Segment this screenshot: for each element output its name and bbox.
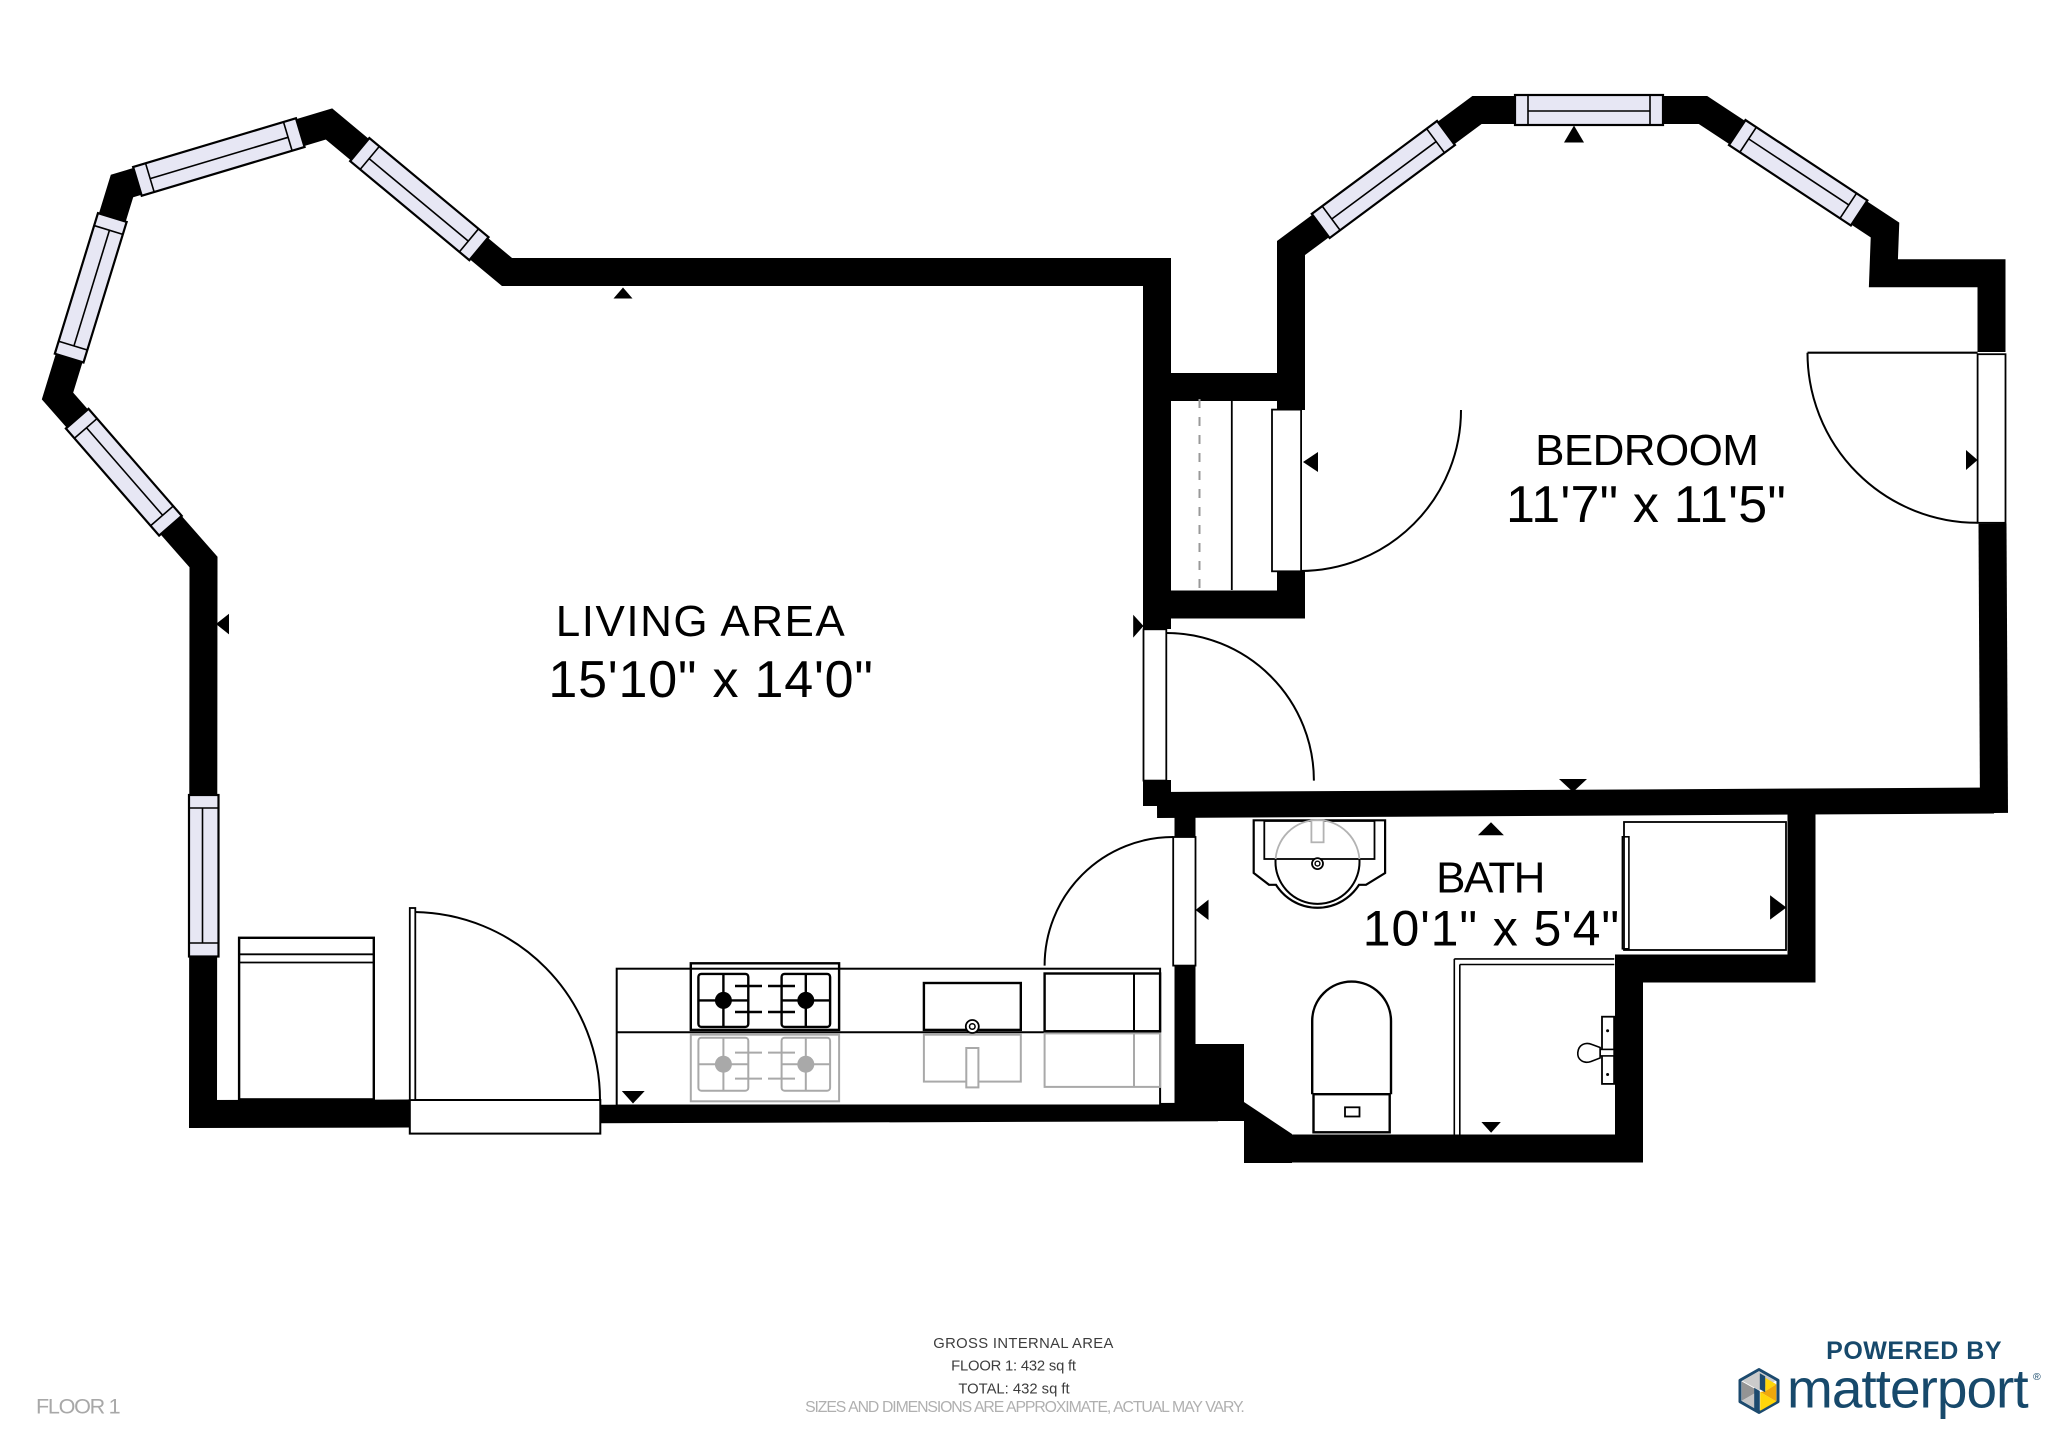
svg-text:GROSS INTERNAL AREA: GROSS INTERNAL AREA — [933, 1336, 1113, 1352]
svg-text:11'7" x 11'5": 11'7" x 11'5" — [1506, 476, 1786, 534]
svg-text:FLOOR 1: 432 sq ft: FLOOR 1: 432 sq ft — [951, 1359, 1076, 1375]
svg-text:BATH: BATH — [1436, 854, 1544, 903]
svg-text:BEDROOM: BEDROOM — [1535, 426, 1758, 475]
svg-text:LIVING AREA: LIVING AREA — [556, 597, 846, 646]
svg-text:SIZES AND DIMENSIONS ARE APPRO: SIZES AND DIMENSIONS ARE APPROXIMATE, AC… — [805, 1399, 1244, 1416]
svg-text:TOTAL: 432 sq ft: TOTAL: 432 sq ft — [958, 1382, 1069, 1398]
svg-text:FLOOR 1: FLOOR 1 — [36, 1394, 120, 1419]
svg-text:15'10" x 14'0": 15'10" x 14'0" — [548, 651, 873, 709]
svg-text:®: ® — [2033, 1371, 2041, 1383]
svg-text:matterport: matterport — [1787, 1358, 2028, 1420]
svg-text:10'1" x 5'4": 10'1" x 5'4" — [1363, 901, 1620, 957]
